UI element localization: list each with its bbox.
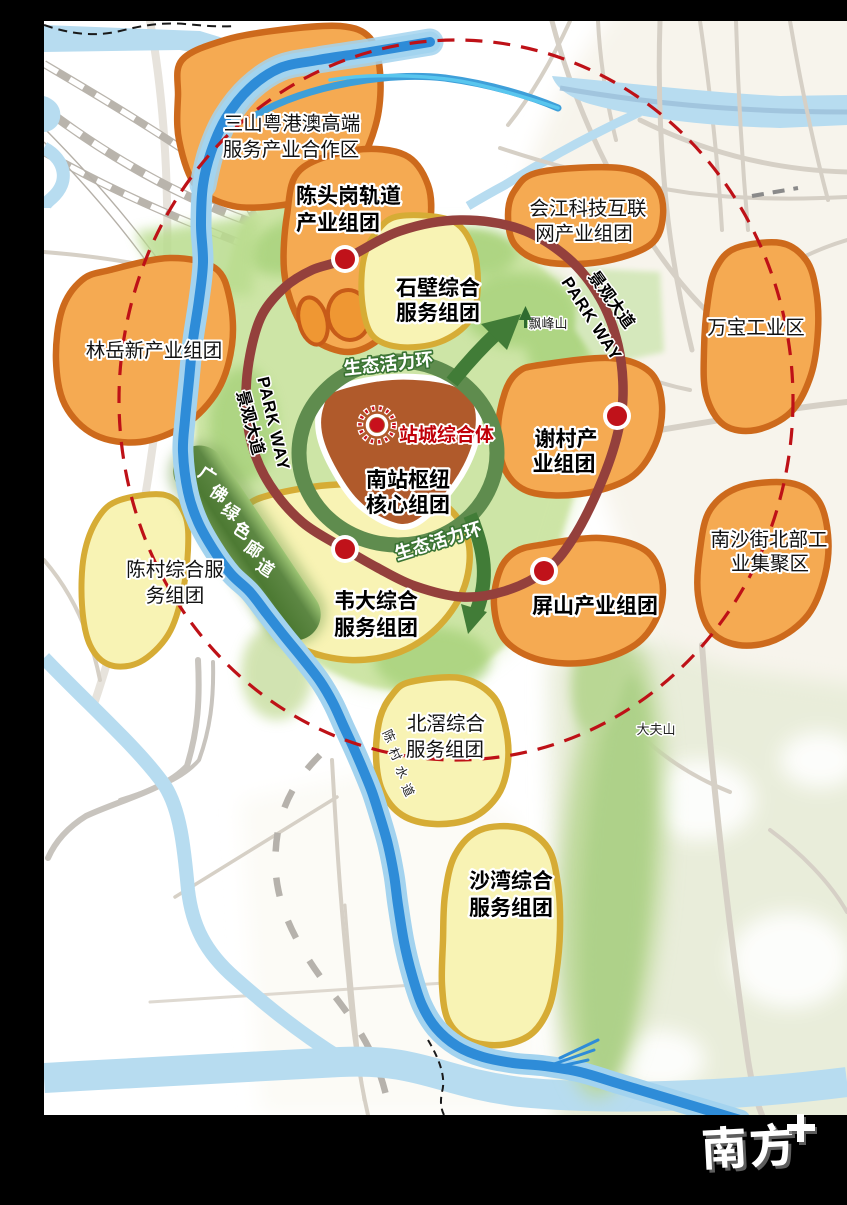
- svg-text:沙湾综合: 沙湾综合: [469, 865, 553, 895]
- svg-text:服务产业合作区: 服务产业合作区: [223, 133, 360, 162]
- svg-text:产业组团: 产业组团: [296, 207, 380, 237]
- svg-text:业集聚区: 业集聚区: [731, 547, 809, 576]
- svg-text:陈村综合服: 陈村综合服: [126, 553, 224, 582]
- svg-text:服务组团: 服务组团: [334, 612, 418, 642]
- svg-text:服务组团: 服务组团: [469, 892, 553, 922]
- svg-text:核心组团: 核心组团: [366, 489, 450, 519]
- svg-text:韦大综合: 韦大综合: [334, 585, 418, 615]
- svg-text:南方: 南方: [699, 1109, 798, 1180]
- svg-text:北滘综合: 北滘综合: [407, 707, 485, 736]
- svg-text:业组团: 业组团: [533, 448, 596, 478]
- svg-text:服务组团: 服务组团: [396, 297, 480, 327]
- svg-text:站城综合体: 站城综合体: [399, 420, 494, 447]
- svg-text:陈头岗轨道: 陈头岗轨道: [296, 180, 401, 210]
- svg-text:三山粤港澳高端: 三山粤港澳高端: [224, 107, 361, 136]
- svg-text:飘峰山: 飘峰山: [528, 313, 567, 332]
- svg-text:大夫山: 大夫山: [636, 719, 675, 738]
- svg-text:万宝工业区: 万宝工业区: [707, 311, 805, 340]
- svg-text:网产业组团: 网产业组团: [535, 217, 633, 246]
- svg-text:务组团: 务组团: [146, 579, 205, 608]
- svg-text:林岳新产业组团: 林岳新产业组团: [86, 334, 223, 363]
- svg-text:服务组团: 服务组团: [406, 733, 484, 762]
- svg-text:屏山产业组团: 屏山产业组团: [532, 590, 658, 620]
